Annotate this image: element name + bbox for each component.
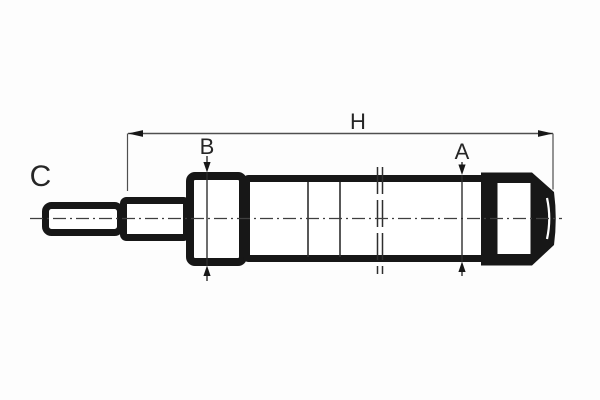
arrowhead-down-icon (458, 165, 465, 176)
arrowhead-up-icon (203, 266, 210, 277)
label-H: H (350, 109, 366, 134)
label-A: A (455, 139, 470, 164)
technical-diagram: H B A C (0, 0, 600, 400)
label-C: C (30, 160, 52, 193)
arrowhead-up-icon (458, 262, 465, 273)
arrowhead-right-icon (538, 130, 553, 137)
label-B: B (200, 134, 215, 159)
shock-absorber-part (30, 167, 562, 274)
arrowhead-down-icon (203, 162, 210, 173)
arrowhead-left-icon (128, 130, 143, 137)
shock-absorber-drawing: H B A C (0, 0, 600, 400)
